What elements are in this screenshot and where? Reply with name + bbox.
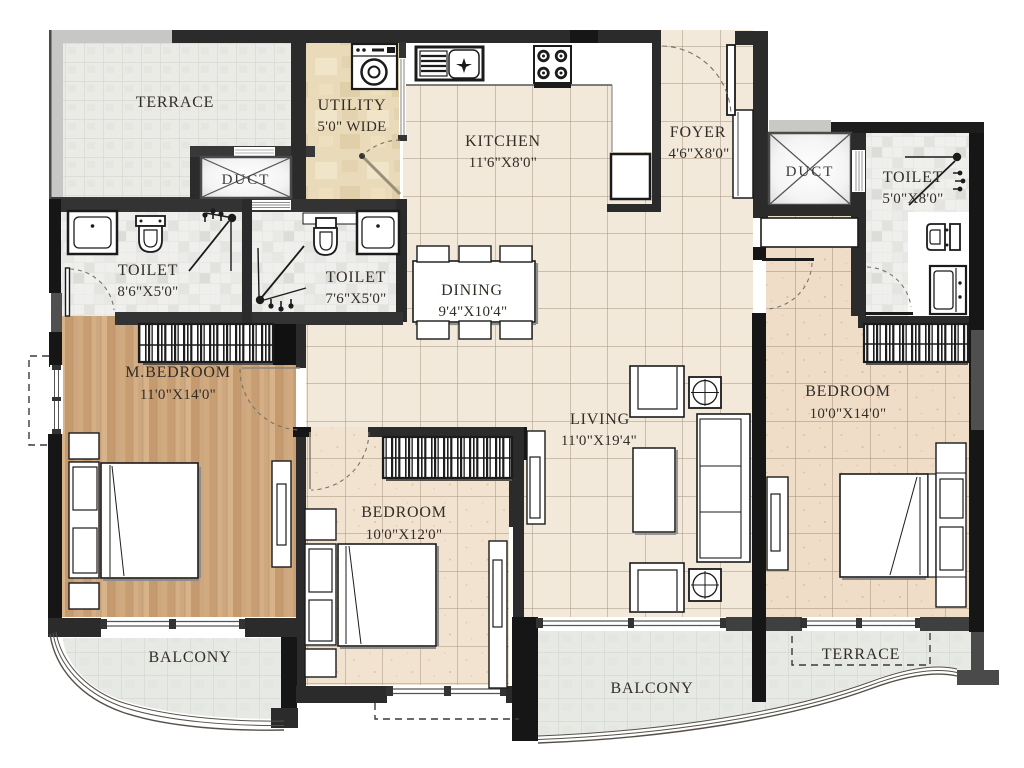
svg-text:TOILET: TOILET bbox=[326, 269, 387, 286]
svg-text:10'0"X12'0": 10'0"X12'0" bbox=[366, 527, 443, 543]
svg-text:BEDROOM: BEDROOM bbox=[361, 504, 447, 521]
svg-text:9'4"X10'4": 9'4"X10'4" bbox=[439, 304, 508, 320]
svg-text:5'0" WIDE: 5'0" WIDE bbox=[317, 119, 386, 135]
svg-text:BEDROOM: BEDROOM bbox=[805, 383, 891, 400]
svg-text:8'6"X5'0": 8'6"X5'0" bbox=[117, 284, 178, 300]
svg-text:UTILITY: UTILITY bbox=[318, 97, 387, 114]
svg-text:DUCT: DUCT bbox=[222, 172, 271, 188]
svg-text:LIVING: LIVING bbox=[570, 411, 630, 428]
svg-text:TERRACE: TERRACE bbox=[822, 646, 901, 663]
svg-text:BALCONY: BALCONY bbox=[149, 649, 232, 666]
svg-text:DINING: DINING bbox=[441, 282, 503, 299]
svg-text:DUCT: DUCT bbox=[786, 164, 835, 180]
svg-text:TOILET: TOILET bbox=[883, 169, 944, 186]
svg-text:11'0"X14'0": 11'0"X14'0" bbox=[140, 387, 216, 403]
svg-text:M.BEDROOM: M.BEDROOM bbox=[125, 364, 230, 381]
svg-text:TOILET: TOILET bbox=[118, 262, 179, 279]
svg-text:BALCONY: BALCONY bbox=[611, 680, 694, 697]
svg-text:11'6"X8'0": 11'6"X8'0" bbox=[469, 155, 537, 171]
svg-text:7'6"X5'0": 7'6"X5'0" bbox=[325, 291, 386, 307]
svg-text:TERRACE: TERRACE bbox=[136, 94, 215, 111]
svg-text:10'0"X14'0": 10'0"X14'0" bbox=[810, 406, 887, 422]
svg-text:4'6"X8'0": 4'6"X8'0" bbox=[668, 146, 729, 162]
svg-text:FOYER: FOYER bbox=[670, 124, 726, 141]
svg-text:11'0"X19'4": 11'0"X19'4" bbox=[561, 433, 637, 449]
svg-text:KITCHEN: KITCHEN bbox=[465, 133, 541, 150]
svg-text:5'0"X8'0": 5'0"X8'0" bbox=[882, 191, 943, 207]
